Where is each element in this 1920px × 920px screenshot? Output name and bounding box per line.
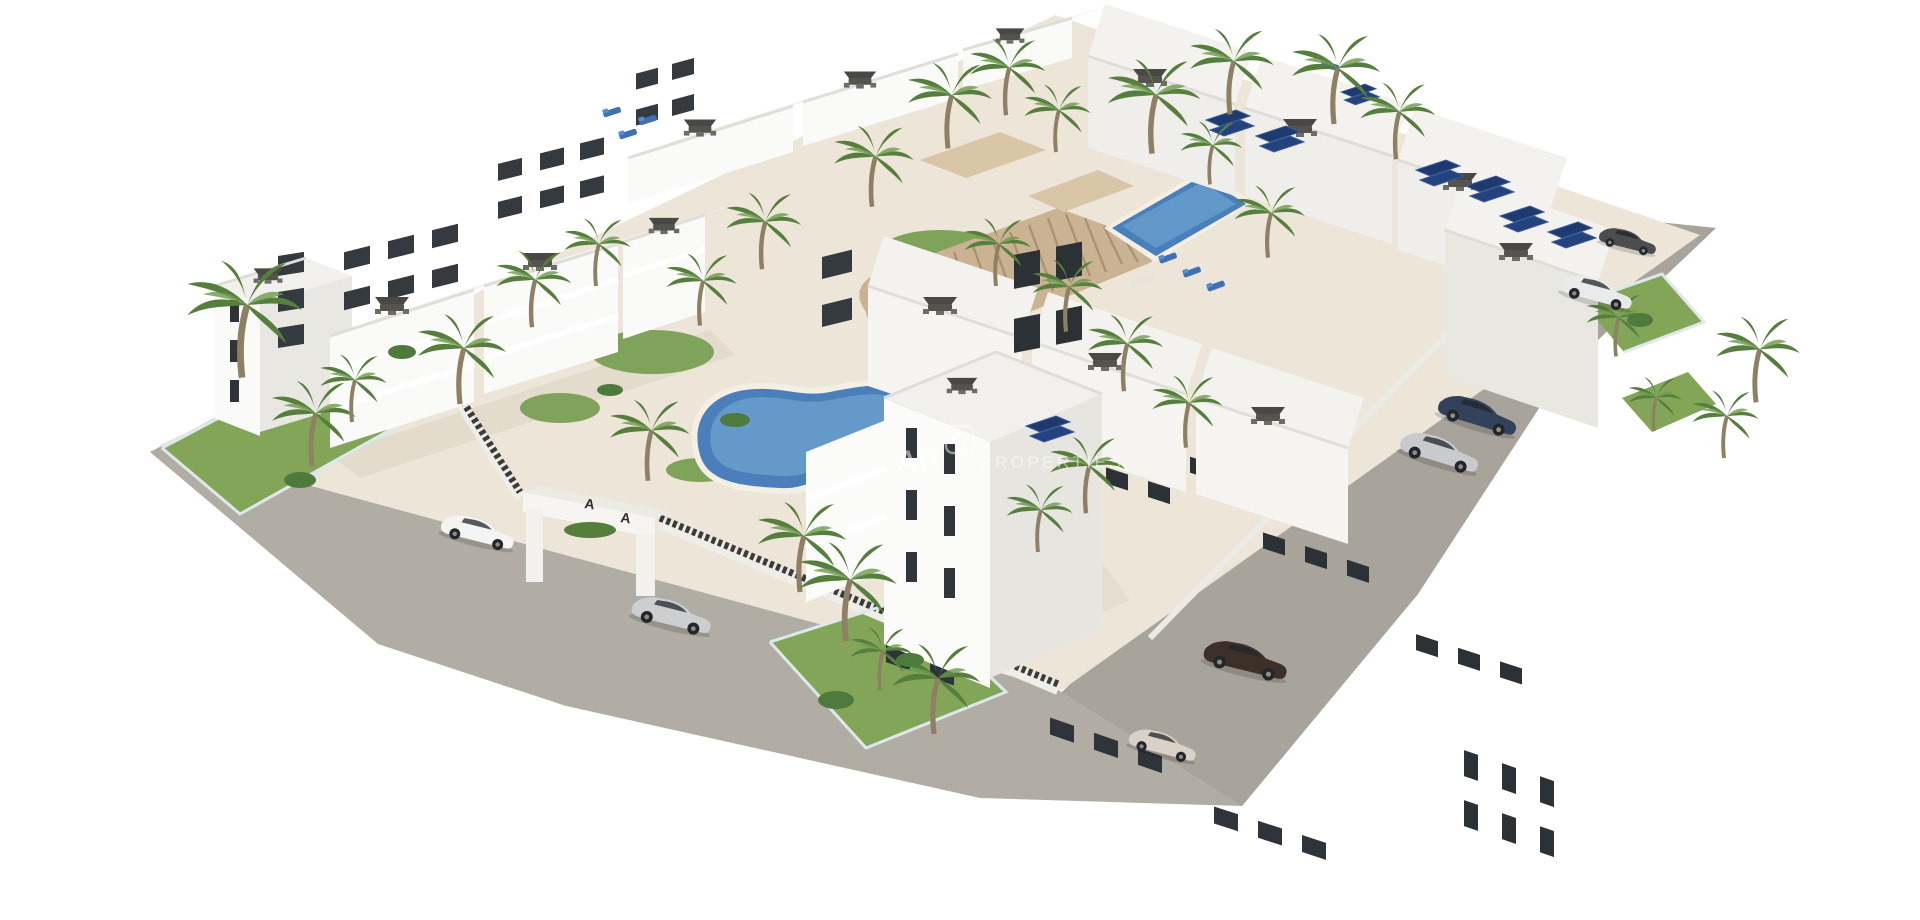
watermark-brand: PROPERTIES <box>980 453 1124 472</box>
watermark-logo: AB <box>896 445 941 478</box>
architectural-render: A A <box>0 0 1920 920</box>
gate-planter <box>564 522 616 538</box>
render-canvas: A A <box>0 0 1920 920</box>
